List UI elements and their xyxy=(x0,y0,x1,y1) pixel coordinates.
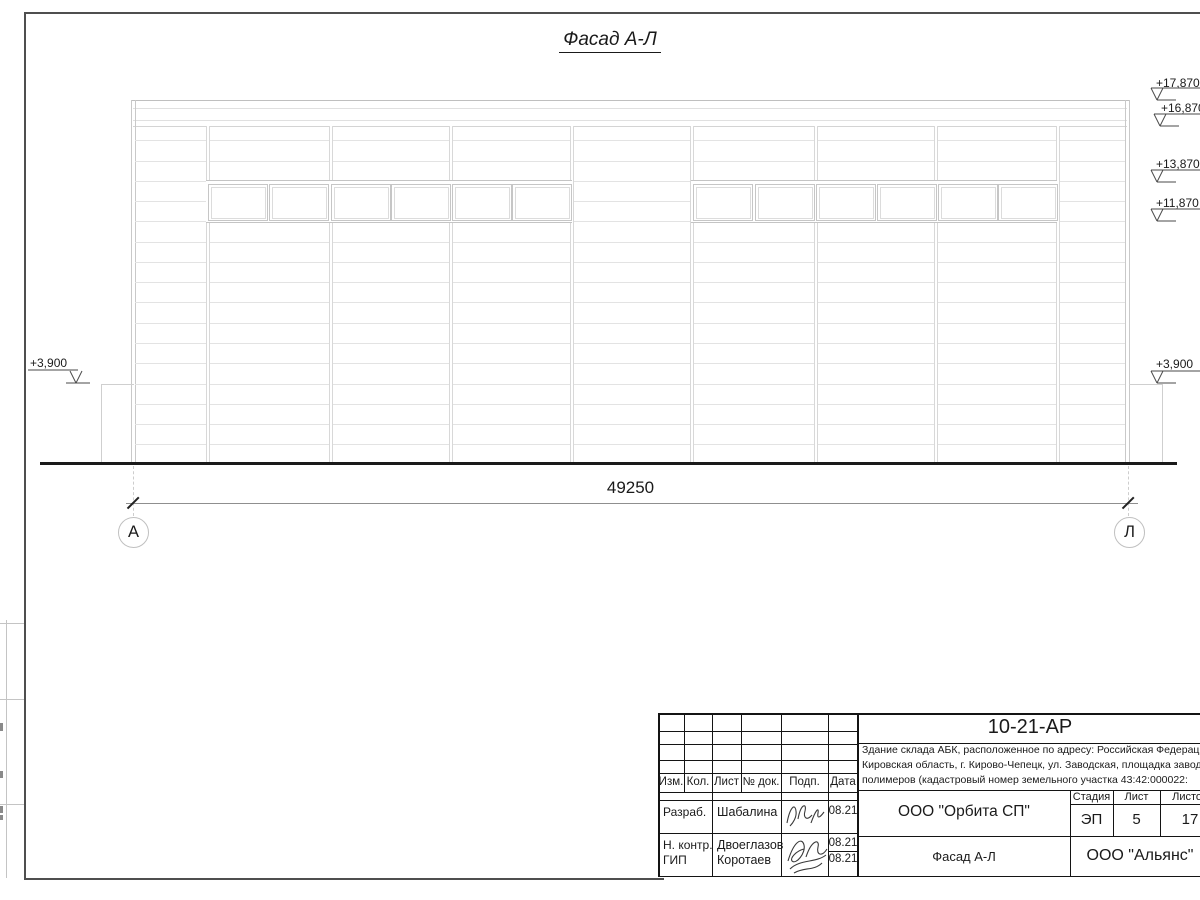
titleblock-col-data: Дата xyxy=(828,776,858,788)
staff-name: Двоеглазов xyxy=(717,838,783,852)
staff-name: Коротаев xyxy=(717,853,771,867)
titleblock-col-list: Лист xyxy=(712,776,741,788)
titleblock-designer-org: ООО "Орбита СП" xyxy=(858,803,1070,821)
titleblock-description-line: Здание склада АБК, расположенное по адре… xyxy=(862,744,1200,756)
titleblock-sheet-title: Фасад А-Л xyxy=(858,849,1070,864)
titleblock-line xyxy=(658,713,1200,715)
titleblock-sheet-number: 5 xyxy=(1113,811,1160,828)
titleblock-client-org: ООО "Альянс" xyxy=(1070,847,1200,865)
staff-date: 08.21 xyxy=(828,837,858,849)
titleblock-col-kol: Кол. xyxy=(684,776,712,788)
drawing-sheet: Фасад А-Л +17,870 +16,870 +13,870 +11,87… xyxy=(0,0,1200,900)
titleblock-description-line: Кировская область, г. Кирово-Чепецк, ул.… xyxy=(862,759,1200,771)
staff-date: 08.21 xyxy=(828,853,858,865)
titleblock-col-izm: Изм. xyxy=(658,776,684,788)
titleblock-sheets-total: 17 xyxy=(1160,811,1200,828)
titleblock-stage-label: Стадия xyxy=(1070,791,1113,803)
titleblock-project-code: 10-21-АР xyxy=(858,716,1200,739)
titleblock-line xyxy=(658,713,660,877)
staff-role: ГИП xyxy=(663,853,687,867)
titleblock-line xyxy=(1070,804,1200,805)
titleblock-col-podp: Подп. xyxy=(781,776,828,788)
titleblock-sheets-label: Листов xyxy=(1160,791,1200,803)
staff-date: 08.21 xyxy=(828,805,858,817)
titleblock-line xyxy=(658,876,1200,878)
titleblock-sheet-label: Лист xyxy=(1113,791,1160,803)
signature-scribble xyxy=(782,833,830,880)
titleblock-description-line: полимеров (кадастровый номер земельного … xyxy=(862,774,1188,786)
titleblock-stage-value: ЭП xyxy=(1070,811,1113,828)
staff-role: Разраб. xyxy=(663,805,706,819)
staff-name: Шабалина xyxy=(717,805,777,819)
signature-scribble xyxy=(783,799,827,836)
titleblock-line xyxy=(828,851,858,852)
titleblock-col-ndok: № док. xyxy=(741,776,781,788)
staff-role: Н. контр. xyxy=(663,838,713,852)
titleblock-line xyxy=(858,836,1200,838)
